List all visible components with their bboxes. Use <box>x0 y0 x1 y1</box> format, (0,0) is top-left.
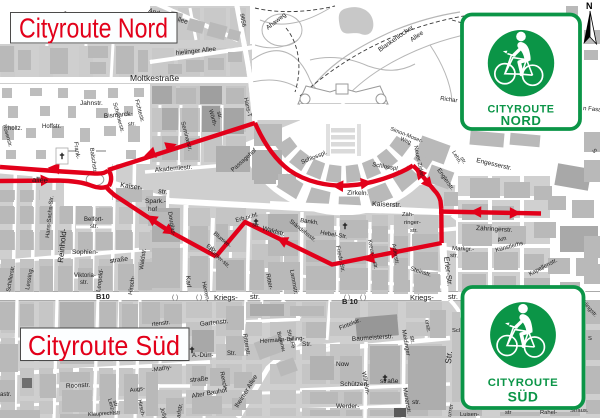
svg-text:str.: str. <box>410 228 418 234</box>
svg-text:holtz.: holtz. <box>8 126 23 132</box>
svg-text:Now: Now <box>336 361 349 368</box>
svg-text:Cityroute Nord: Cityroute Nord <box>19 13 168 44</box>
svg-text:ringer-: ringer- <box>404 220 421 226</box>
svg-text:Luisen-: Luisen- <box>460 412 479 418</box>
svg-text:Cityroute Süd: Cityroute Süd <box>28 330 180 361</box>
svg-text:Scl: Scl <box>452 328 460 334</box>
svg-text:Kriegs-: Kriegs- <box>410 293 434 302</box>
svg-text:hof: hof <box>148 206 157 213</box>
svg-text:N: N <box>586 1 593 11</box>
svg-text:CITYROUTE: CITYROUTE <box>488 377 559 389</box>
svg-text:Kriegs-: Kriegs- <box>214 293 238 302</box>
svg-text:): ) <box>348 294 350 301</box>
svg-text:Str.: Str. <box>443 351 454 365</box>
svg-text:Karl: Karl <box>184 276 192 289</box>
svg-text:S: S <box>588 336 592 342</box>
svg-text:Str.: Str. <box>302 341 312 348</box>
svg-text:): ) <box>176 294 178 301</box>
svg-text:Spark.-: Spark.- <box>145 198 166 205</box>
svg-text:Jahnstr.: Jahnstr. <box>80 100 103 107</box>
svg-text:Sophien-: Sophien- <box>72 249 98 256</box>
svg-text:straße: straße <box>380 378 399 385</box>
svg-text:Zäh-: Zäh- <box>402 212 414 218</box>
svg-text:Rahel-: Rahel- <box>540 410 557 416</box>
svg-text:str.: str. <box>412 399 421 406</box>
svg-text:Kaiserstr.: Kaiserstr. <box>372 201 401 209</box>
svg-text:Belfort-: Belfort- <box>84 217 103 223</box>
svg-text:astr.: astr. <box>0 392 12 398</box>
svg-text:str.: str. <box>128 121 137 128</box>
svg-text:Schützen-: Schützen- <box>340 381 369 388</box>
svg-text:allee: allee <box>32 175 48 185</box>
svg-text:Markgr.-: Markgr.- <box>452 246 474 253</box>
svg-text:): ) <box>200 294 202 301</box>
svg-text:Hoffstr.: Hoffstr. <box>42 124 61 130</box>
svg-text:B10: B10 <box>96 292 110 301</box>
svg-text:NORD: NORD <box>501 113 542 128</box>
svg-text:SÜD: SÜD <box>508 389 539 405</box>
svg-text:str: str <box>505 410 512 416</box>
svg-text:str.: str. <box>90 224 98 230</box>
svg-text:str.: str. <box>80 280 88 286</box>
svg-text:Str.: Str. <box>227 351 236 357</box>
svg-text:str.: str. <box>250 292 260 301</box>
svg-text:str.: str. <box>158 188 168 196</box>
svg-text:Werder-: Werder- <box>336 403 359 410</box>
svg-text:Roonstr.: Roonstr. <box>66 382 91 390</box>
svg-text:): ) <box>364 294 366 301</box>
svg-text:Zirkeln.: Zirkeln. <box>347 190 369 198</box>
svg-text:A.-Dürr-: A.-Dürr- <box>192 353 213 359</box>
svg-text:str.: str. <box>448 292 458 301</box>
svg-text:Moltkestraße: Moltkestraße <box>130 73 179 83</box>
svg-text:Viktoria-: Viktoria- <box>74 273 96 279</box>
